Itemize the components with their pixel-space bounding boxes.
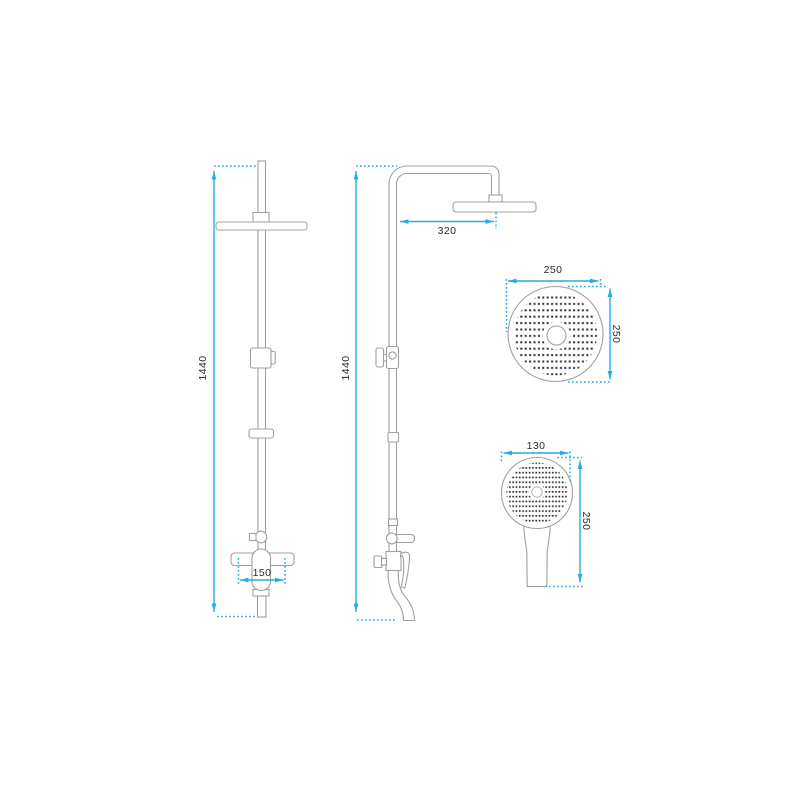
slider-holder (251, 348, 272, 368)
hand-height-label: 250 (580, 512, 592, 531)
arm-projection-label: 320 (438, 225, 457, 237)
mixer-lever-handle (401, 552, 410, 588)
holder-wall-plate (376, 348, 384, 367)
wall-connection-knob (374, 556, 382, 568)
hand-width-label: 130 (527, 440, 546, 452)
hand-shower-center-hole (532, 487, 542, 497)
wall-bracket (249, 429, 274, 438)
overhead-head-side (453, 202, 536, 212)
outlet-pipe (258, 596, 267, 617)
holder-block (387, 347, 399, 369)
overhead-head-edge (216, 222, 307, 230)
wall-connection-stem (382, 559, 387, 566)
shower-set-technical-drawing (0, 0, 800, 800)
front-view-outline (216, 161, 307, 617)
diverter-knob (255, 531, 267, 543)
front-view-dimensions (214, 166, 285, 617)
mixer-body-side (386, 552, 401, 571)
head-height-label: 250 (610, 325, 622, 344)
overhead-shower-head-view (507, 279, 613, 382)
slider-holder-tab (271, 352, 275, 365)
pipe-coupling (388, 433, 399, 443)
pipe-joint (389, 519, 398, 526)
technical-drawing-page: 1440 150 1440 320 250 250 130 250 (0, 0, 800, 800)
front-height-label: 1440 (197, 356, 209, 381)
diverter-stem (250, 534, 257, 541)
diverter-knob-side (386, 533, 397, 544)
side-view-dimensions (356, 166, 496, 620)
head-width-label: 250 (544, 264, 563, 276)
diverter-arm (395, 535, 415, 543)
valve-spacing-label: 150 (253, 567, 272, 579)
front-view (214, 161, 307, 617)
head-connector-side (489, 195, 502, 202)
head-connector (253, 213, 269, 223)
side-height-label: 1440 (340, 356, 352, 381)
hand-shower-view (502, 452, 584, 587)
spout (388, 571, 414, 621)
head-center-hole (547, 326, 566, 345)
